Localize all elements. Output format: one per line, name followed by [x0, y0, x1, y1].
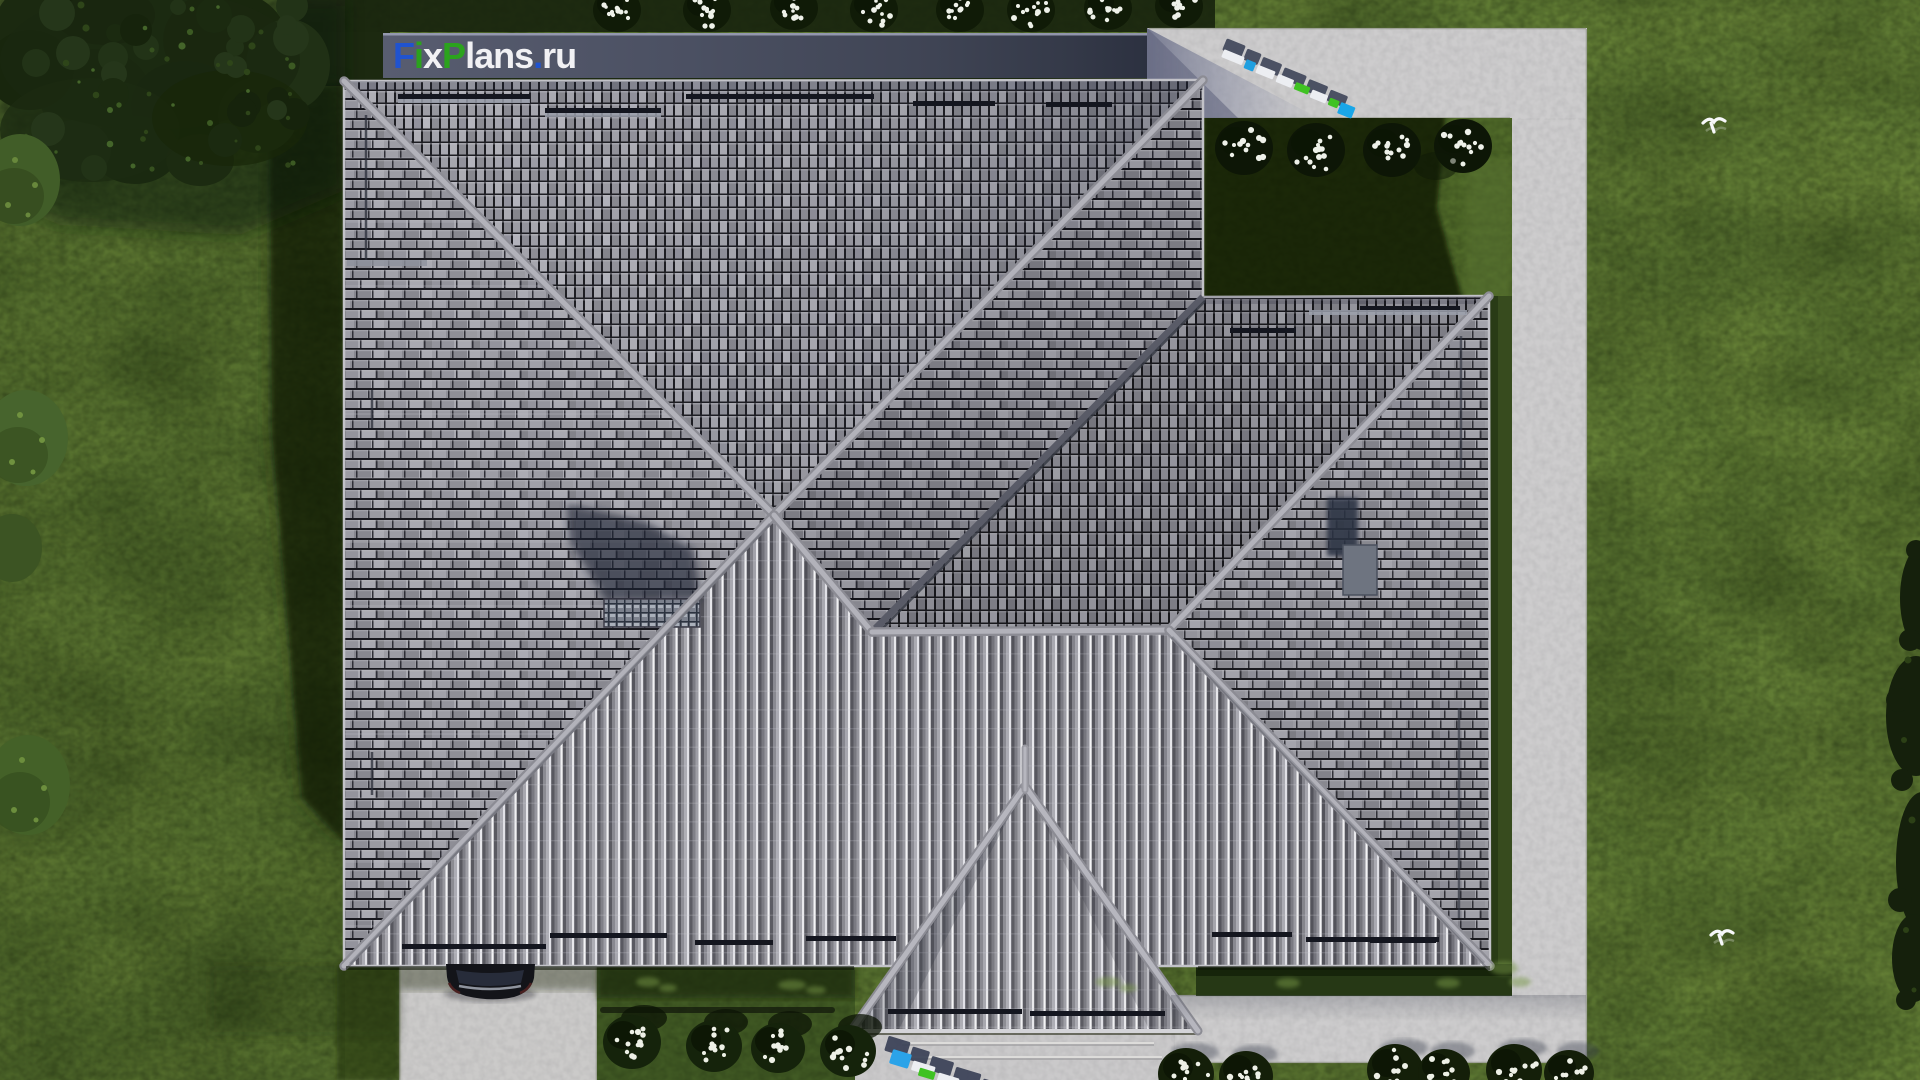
svg-text:FixPlans.ru: FixPlans.ru — [393, 35, 576, 76]
